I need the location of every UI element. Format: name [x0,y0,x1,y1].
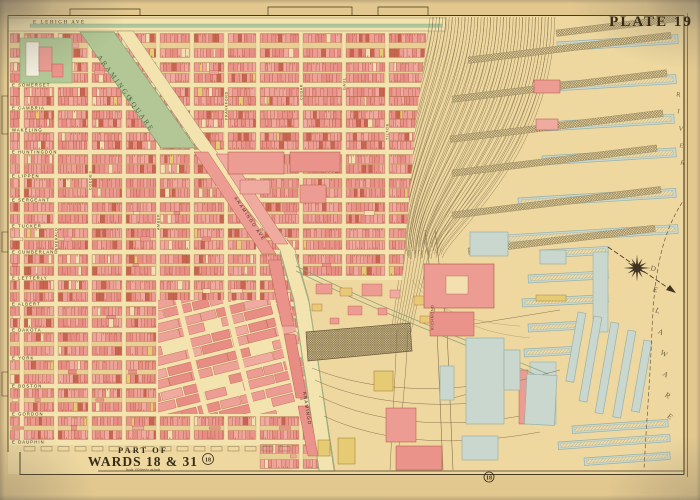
svg-text:E LETTERLY: E LETTERLY [12,276,48,281]
svg-text:18: 18 [205,458,211,464]
svg-text:PLATE 19: PLATE 19 [609,14,693,30]
svg-text:CEDAR: CEDAR [300,84,304,100]
svg-text:18: 18 [486,476,492,482]
svg-text:E LIPPEN: E LIPPEN [12,174,40,179]
svg-text:E YORK: E YORK [12,356,34,361]
svg-text:E DAUPHIN: E DAUPHIN [12,440,45,445]
svg-text:EMERALD: EMERALD [55,227,59,250]
svg-text:AMBER: AMBER [157,214,161,230]
svg-text:RICHMOND: RICHMOND [431,304,435,330]
svg-text:E GORDON: E GORDON [12,412,44,417]
svg-text:E SERGEANT: E SERGEANT [12,198,50,203]
svg-text:COEDES: COEDES [89,170,93,190]
svg-text:E CAMBRIA: E CAMBRIA [12,106,45,111]
svg-text:E SOMERSET: E SOMERSET [12,83,50,88]
svg-text:FRANKFORD: FRANKFORD [225,91,229,120]
svg-text:E TUCKER: E TUCKER [12,224,42,229]
svg-text:WAKELING: WAKELING [12,128,43,133]
svg-text:TILTON: TILTON [386,123,390,140]
svg-text:E ALBERT: E ALBERT [12,302,41,307]
svg-text:GAUL: GAUL [343,77,347,90]
svg-text:E CUMBERLAND: E CUMBERLAND [12,250,58,255]
svg-text:E HUNTINGDON: E HUNTINGDON [12,150,58,155]
svg-text:E DAKOTA: E DAKOTA [12,328,42,333]
svg-text:E BOSTON: E BOSTON [12,384,42,389]
svg-text:Scale 150 feet to an inch: Scale 150 feet to an inch [126,468,161,472]
